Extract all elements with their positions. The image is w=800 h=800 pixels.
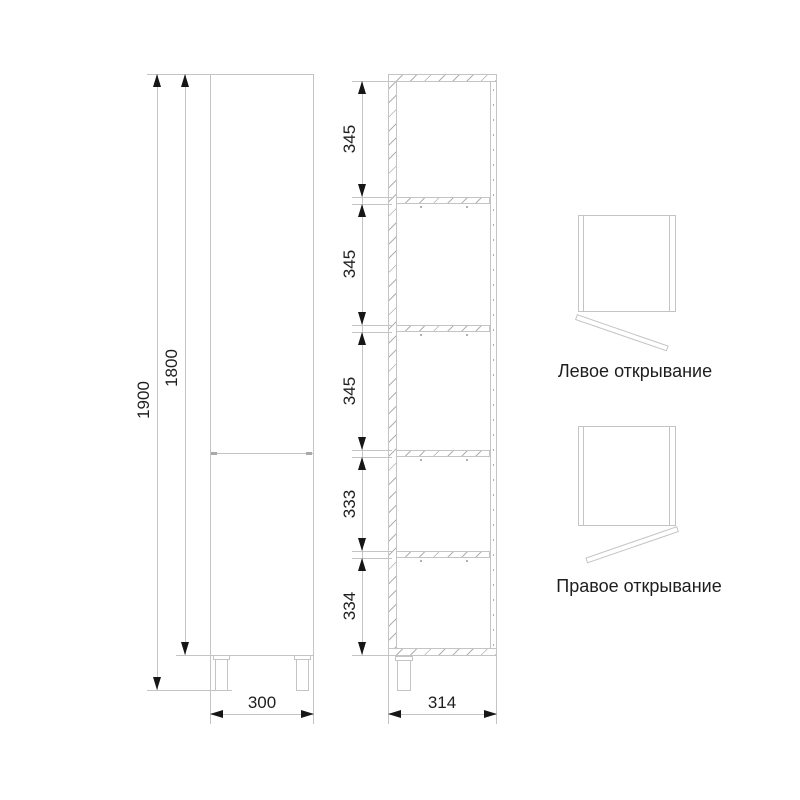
dimension-label-300: 300	[212, 693, 312, 713]
shelf-pin	[420, 206, 422, 208]
bottom-panel	[388, 648, 497, 656]
door-swing-right	[585, 526, 679, 563]
shelf-pin	[466, 459, 468, 461]
side-wall-panel	[388, 74, 397, 656]
front-wall-panel	[490, 74, 497, 656]
arrowhead-down	[181, 642, 189, 655]
cabinet-top-view	[578, 426, 676, 526]
extension-line	[176, 655, 211, 656]
dimension-line-1800	[185, 74, 186, 655]
leg	[215, 659, 228, 691]
dimension-label-334: 334	[340, 546, 360, 666]
dimension-label-1800: 1800	[162, 308, 182, 428]
shelf-pin	[420, 334, 422, 336]
dimension-label-345: 345	[340, 331, 360, 451]
shelf-pin	[420, 560, 422, 562]
cabinet-outline	[210, 74, 314, 656]
technical-drawing: 1900 1800 300	[0, 0, 800, 800]
shelf	[396, 551, 490, 558]
side-wall-line	[669, 216, 670, 311]
leg	[296, 659, 309, 691]
hinge-mark	[306, 452, 312, 455]
arrowhead-up	[181, 74, 189, 87]
door-open-right-label: Правое открывание	[554, 576, 724, 597]
top-panel	[388, 74, 497, 82]
dimension-line-314	[388, 714, 497, 715]
dimension-label-345: 345	[340, 204, 360, 324]
shelf	[396, 450, 490, 457]
cabinet-top-view	[578, 215, 676, 312]
hinge-mark	[211, 452, 217, 455]
shelf	[396, 325, 490, 332]
extension-line	[352, 325, 392, 326]
extension-line	[147, 690, 232, 691]
dimension-label-314: 314	[392, 693, 492, 713]
arrowhead-up	[153, 74, 161, 87]
shelf-pin	[466, 334, 468, 336]
door-split-line	[210, 453, 314, 454]
shelf-pin	[466, 206, 468, 208]
side-wall-line	[583, 216, 584, 311]
side-wall-line	[669, 427, 670, 525]
shelf-pin	[420, 459, 422, 461]
dimension-label-1900: 1900	[134, 340, 154, 460]
shelf-pin	[466, 560, 468, 562]
shelf	[396, 197, 490, 204]
leg	[397, 660, 411, 691]
side-wall-line	[583, 427, 584, 525]
door-open-left-label: Левое открывание	[550, 361, 720, 382]
dimension-line-1900	[157, 74, 158, 690]
door-swing-left	[575, 314, 669, 351]
dimension-line-300	[210, 714, 314, 715]
arrowhead-down	[153, 677, 161, 690]
dimension-label-345: 345	[340, 79, 360, 199]
